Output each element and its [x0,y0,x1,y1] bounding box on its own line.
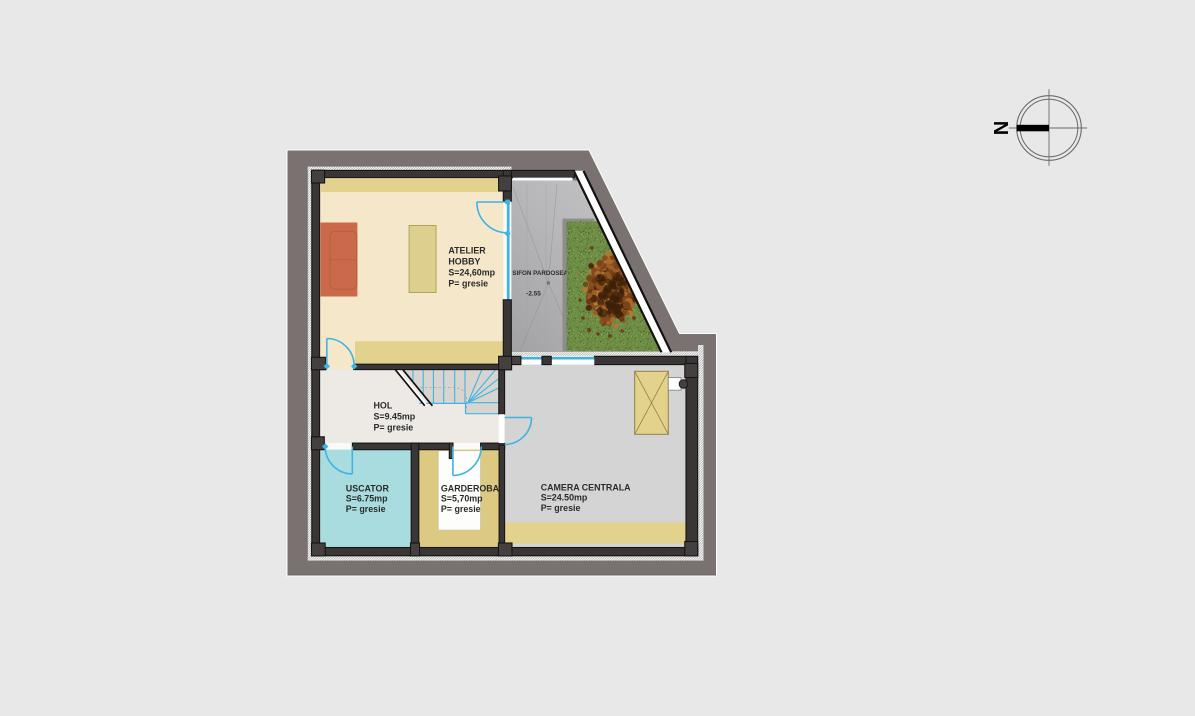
svg-text:USCATOR: USCATOR [346,483,390,493]
svg-text:N: N [989,121,1011,135]
svg-text:P= gresie: P= gresie [441,504,481,514]
svg-text:CAMERA CENTRALA: CAMERA CENTRALA [541,482,631,492]
svg-text:GARDEROBA: GARDEROBA [441,483,500,493]
svg-text:-2.55: -2.55 [526,291,541,298]
svg-text:S=9.45mp: S=9.45mp [374,411,416,421]
svg-text:HOL: HOL [374,400,393,410]
svg-text:P= gresie: P= gresie [346,504,386,514]
svg-text:S=24.50mp: S=24.50mp [541,492,588,502]
svg-text:S=24,60mp: S=24,60mp [448,267,495,277]
svg-text:P= gresie: P= gresie [448,278,488,288]
svg-text:ATELIER: ATELIER [448,246,486,256]
svg-text:P= gresie: P= gresie [541,503,581,513]
svg-text:HOBBY: HOBBY [448,256,480,266]
svg-text:S=5,70mp: S=5,70mp [441,494,483,504]
svg-text:P= gresie: P= gresie [374,423,414,433]
svg-text:S=6.75mp: S=6.75mp [346,494,388,504]
